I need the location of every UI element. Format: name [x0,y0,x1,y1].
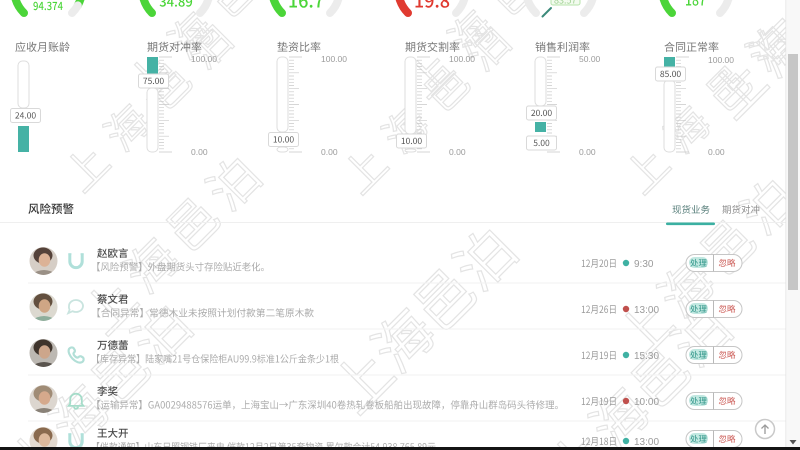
svg-text:0.00: 0.00 [708,147,725,157]
svg-text:0.00: 0.00 [191,147,208,157]
svg-text:100.00: 100.00 [191,54,217,64]
svg-text:13:00: 13:00 [634,437,659,448]
svg-text:100.00: 100.00 [708,55,734,65]
svg-text:10:00: 10:00 [634,397,659,408]
svg-text:0.00: 0.00 [579,147,596,157]
svg-text:9:30: 9:30 [634,259,654,270]
svg-text:0.00: 0.00 [321,147,338,157]
svg-text:50.00: 50.00 [579,54,601,64]
svg-text:15:30: 15:30 [634,351,659,362]
svg-text:100.00: 100.00 [449,54,475,64]
svg-text:0.00: 0.00 [449,147,466,157]
svg-text:100.00: 100.00 [321,54,347,64]
svg-text:13:00: 13:00 [634,305,659,316]
